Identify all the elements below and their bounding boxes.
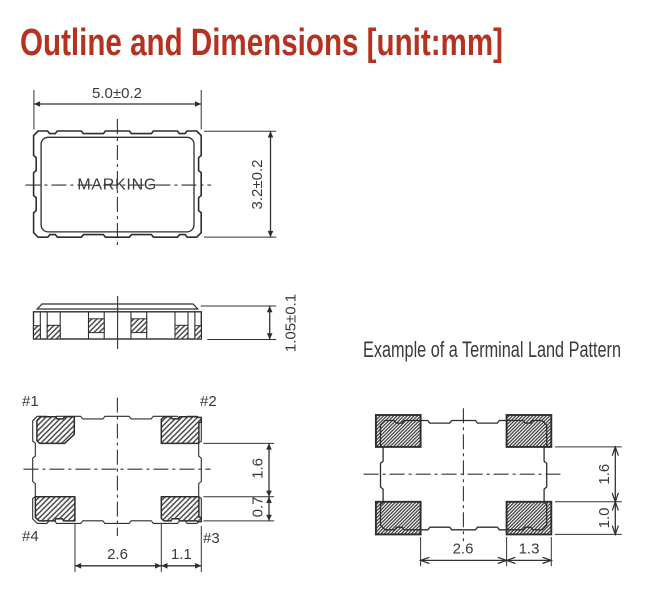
svg-text:#1: #1 [22,393,39,410]
svg-text:Outline and Dimensions [unit:m: Outline and Dimensions [unit:mm] [20,22,503,64]
svg-text:Example of a Terminal Land Pat: Example of a Terminal Land Pattern [363,337,621,362]
svg-text:1.0: 1.0 [596,507,613,528]
svg-text:1.3: 1.3 [519,541,540,558]
svg-text:#2: #2 [200,393,217,410]
svg-text:1.05±0.1: 1.05±0.1 [283,294,300,352]
svg-text:#3: #3 [203,530,220,547]
svg-text:5.0±0.2: 5.0±0.2 [92,85,142,102]
svg-text:MARKING: MARKING [77,176,157,193]
svg-text:1.6: 1.6 [250,458,267,479]
svg-text:1.6: 1.6 [596,464,613,485]
svg-text:1.1: 1.1 [171,546,192,563]
svg-text:2.6: 2.6 [107,546,128,563]
svg-text:2.6: 2.6 [453,541,474,558]
svg-text:3.2±0.2: 3.2±0.2 [249,160,266,210]
svg-text:#4: #4 [22,528,39,545]
svg-text:0.7: 0.7 [250,497,267,518]
